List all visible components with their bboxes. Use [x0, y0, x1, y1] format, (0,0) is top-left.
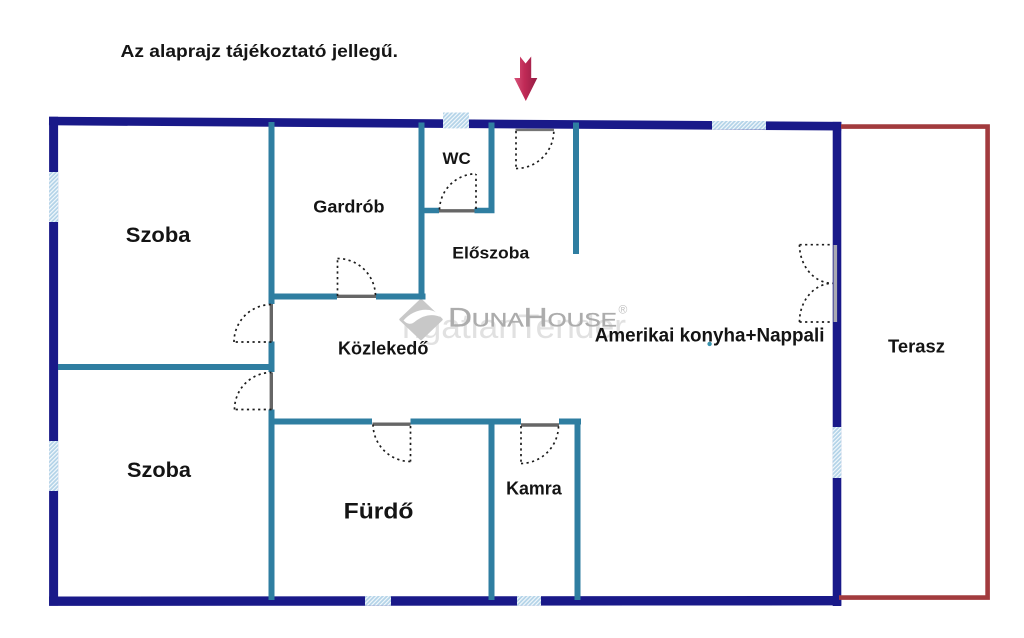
svg-text:DUNAHOUSE: DUNAHOUSE [448, 303, 617, 333]
svg-text:Közlekedő: Közlekedő [338, 338, 428, 359]
svg-text:®: ® [619, 303, 628, 317]
svg-text:Előszoba: Előszoba [452, 245, 530, 263]
svg-text:Gardrób: Gardrób [313, 196, 384, 216]
svg-text:Kamra: Kamra [506, 477, 562, 498]
svg-text:Amerikai konyha+Nappali: Amerikai konyha+Nappali [595, 325, 825, 347]
svg-text:Az alaprajz tájékoztató jelleg: Az alaprajz tájékoztató jellegű. [121, 41, 399, 61]
svg-text:Terasz: Terasz [888, 336, 945, 357]
svg-text:Fürdő: Fürdő [344, 499, 414, 524]
svg-text:WC: WC [443, 150, 472, 168]
svg-text:Szoba: Szoba [127, 459, 191, 482]
svg-text:Szoba: Szoba [126, 224, 191, 247]
